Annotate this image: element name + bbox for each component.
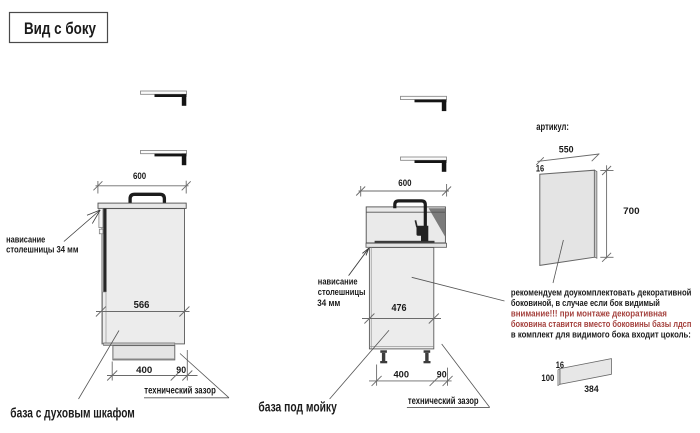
svg-text:боковиной, в случае если бок в: боковиной, в случае если бок видимый [511, 298, 660, 309]
svg-text:600: 600 [398, 178, 411, 188]
svg-text:внимание!!! при монтаже декора: внимание!!! при монтаже декоративная [511, 309, 667, 320]
svg-text:90: 90 [437, 369, 447, 379]
svg-text:600: 600 [133, 171, 146, 181]
svg-text:400: 400 [394, 369, 410, 379]
svg-text:34 мм: 34 мм [317, 298, 340, 309]
svg-text:база под мойку: база под мойку [258, 400, 337, 415]
svg-text:400: 400 [136, 365, 152, 375]
svg-text:в комплект для видимого бока в: в комплект для видимого бока входит цоко… [511, 330, 691, 341]
svg-text:90: 90 [176, 365, 186, 375]
svg-text:база с духовым шкафом: база с духовым шкафом [10, 406, 135, 421]
svg-text:476: 476 [392, 303, 407, 314]
svg-text:артикул:: артикул: [536, 122, 569, 133]
svg-text:столешницы 34 мм: столешницы 34 мм [6, 244, 78, 255]
svg-text:16: 16 [536, 163, 544, 173]
svg-text:566: 566 [134, 300, 150, 311]
svg-text:384: 384 [584, 384, 598, 394]
svg-text:700: 700 [623, 206, 639, 217]
svg-text:технический зазор: технический зазор [408, 396, 479, 407]
svg-text:100: 100 [541, 373, 554, 383]
svg-text:550: 550 [559, 145, 574, 155]
svg-text:Вид с боку: Вид с боку [24, 19, 96, 38]
svg-text:рекомендуем доукомплектовать д: рекомендуем доукомплектовать декоративно… [511, 287, 692, 298]
svg-text:технический зазор: технический зазор [144, 386, 216, 397]
svg-text:столешницы: столешницы [318, 287, 366, 298]
svg-text:боковина ставится вместо боков: боковина ставится вместо боковины базы л… [511, 319, 692, 330]
